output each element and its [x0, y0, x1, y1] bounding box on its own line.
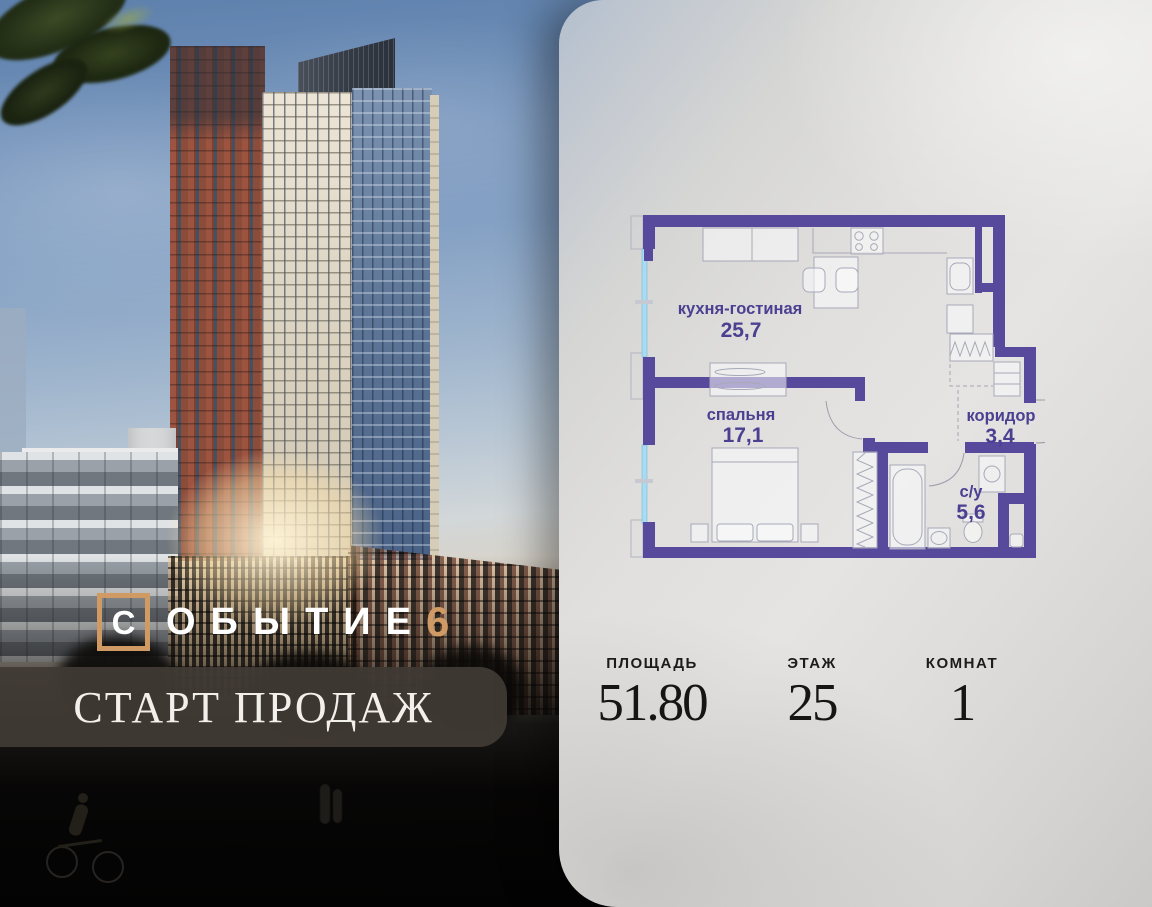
banner-text: СТАРТ ПРОДАЖ	[73, 682, 433, 733]
cyclist-silhouette	[78, 793, 88, 803]
room-label-corridor: коридор	[967, 407, 1036, 425]
pillow	[757, 524, 793, 541]
area-label-corridor: 3,4	[985, 425, 1015, 448]
room-label-kitchen: кухня-гостиная	[678, 300, 803, 318]
stat-value: 51.80	[562, 677, 742, 730]
chair	[836, 268, 858, 292]
pillow	[717, 524, 753, 541]
stat-label: КОМНАТ	[872, 655, 1052, 672]
stat-area: ПЛОЩАДЬ 51.80	[562, 655, 742, 730]
stove	[851, 228, 883, 254]
bedroom-door-arc	[826, 401, 862, 439]
distant-tower	[0, 308, 26, 460]
nightstand	[691, 524, 708, 542]
hall-shelf	[994, 362, 1020, 396]
area-label-kitchen: 25,7	[721, 319, 762, 342]
area-label-bedroom: 17,1	[723, 424, 764, 447]
logo-number: 6	[426, 601, 449, 643]
facade-frames	[631, 216, 643, 557]
promo-flyer: С ОБЫТИЕ 6 СТАРТ ПРОДАЖ	[0, 0, 1152, 907]
pedestrian-silhouette	[333, 789, 342, 823]
tower-pilaster	[430, 95, 439, 557]
bathroom-door-arc	[929, 453, 964, 486]
dresser	[710, 363, 786, 396]
logo-frame: С	[97, 593, 150, 651]
apartment-card: кухня-гостиная 25,7 спальня 17,1 коридор…	[559, 0, 1152, 907]
brand-logo: С ОБЫТИЕ 6	[97, 592, 449, 652]
pedestrian-silhouette	[320, 784, 330, 824]
fridge	[947, 305, 973, 333]
room-label-bathroom: с/у	[960, 483, 984, 501]
stat-rooms: КОМНАТ 1	[872, 655, 1052, 730]
room-label-bedroom: спальня	[707, 406, 776, 424]
logo-letter: С	[112, 606, 136, 639]
nightstand	[801, 524, 818, 542]
area-label-bathroom: 5,6	[956, 501, 985, 524]
bathtub	[890, 465, 925, 549]
washing-machine	[979, 456, 1005, 492]
logo-wordmark: ОБЫТИЕ	[166, 603, 426, 641]
toilet	[964, 522, 982, 543]
sofa	[703, 228, 798, 261]
cyclist-silhouette	[46, 846, 78, 878]
sales-banner: СТАРТ ПРОДАЖ	[0, 667, 507, 747]
entrance-door-arc	[1036, 400, 1045, 443]
stat-value: 1	[872, 677, 1052, 730]
chair	[803, 268, 825, 292]
stat-label: ПЛОЩАДЬ	[562, 655, 742, 672]
building-photo: С ОБЫТИЕ 6 СТАРТ ПРОДАЖ	[0, 0, 640, 907]
apartment-stats: ПЛОЩАДЬ 51.80 ЭТАЖ 25 КОМНАТ 1	[559, 655, 1152, 775]
shower-tray	[1010, 534, 1023, 547]
cyclist-silhouette	[92, 851, 124, 883]
floor-plan: кухня-гостиная 25,7 спальня 17,1 коридор…	[625, 205, 1045, 570]
